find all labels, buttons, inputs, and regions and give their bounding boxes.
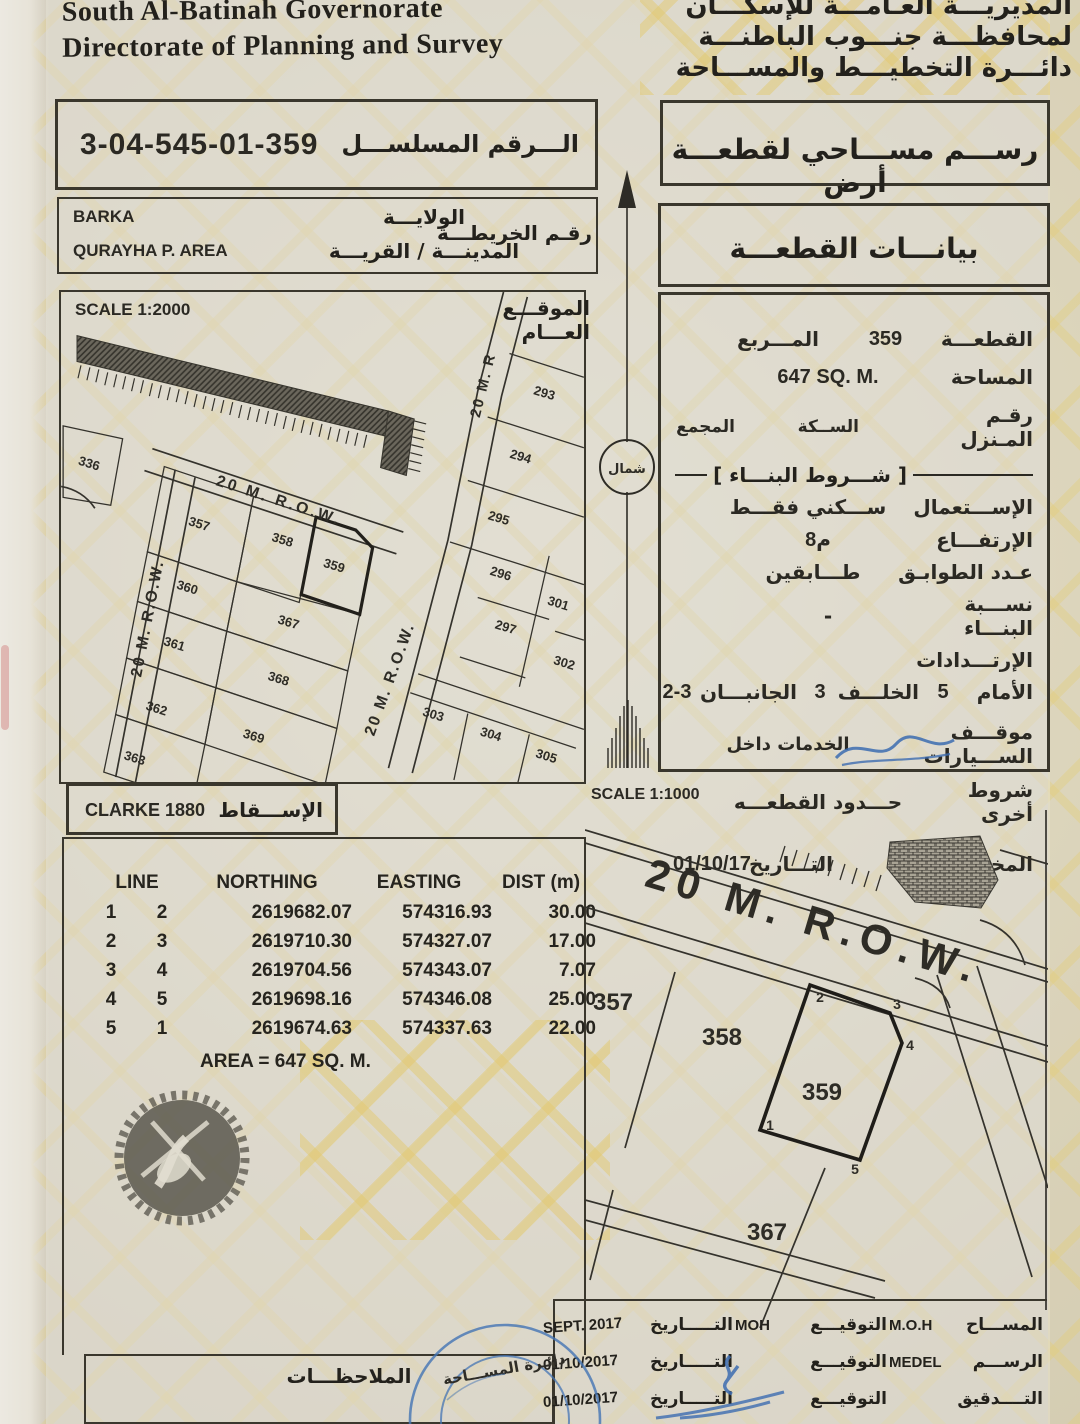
row-label-mid: 20 M. R.O.W. bbox=[362, 620, 419, 738]
ratio-row: نســـبة البنـــاء - bbox=[675, 592, 1033, 640]
block-label: المـــربع bbox=[718, 327, 838, 351]
projection-label: الإســـقاط bbox=[218, 798, 323, 822]
projection-name: CLARKE 1880 bbox=[85, 800, 205, 821]
detail-plot-labels: 357 358 359 367 bbox=[593, 989, 842, 1246]
plot-label: 305 bbox=[534, 746, 559, 767]
date-label: التـــــاريخ bbox=[633, 1315, 733, 1335]
serial-number-box: 3-04-545-01-359 الـــرقم المسلســـل bbox=[55, 99, 598, 190]
cell: 2 bbox=[136, 898, 188, 927]
subject-plot-359-detail-outline bbox=[760, 985, 902, 1160]
setbacks-label: الإرتـــدادات bbox=[675, 648, 1033, 672]
plot-label: 294 bbox=[508, 446, 534, 467]
serial-number-label: الـــرقم المسلســـل bbox=[341, 130, 579, 158]
cell: 2619704.56 bbox=[194, 956, 352, 985]
directorate-name-en: Directorate of Planning and Survey bbox=[62, 25, 582, 66]
surveyor-name: M.O.H bbox=[889, 1317, 953, 1334]
cell: 5 bbox=[136, 985, 188, 1014]
surveyor-row: المســـاح M.O.H التوقيـــع MOH التـــــا… bbox=[557, 1315, 1043, 1335]
col-line: LINE bbox=[92, 868, 182, 898]
coordinates-table: LINE NORTHING EASTING DIST (m) 122619682… bbox=[92, 868, 596, 1073]
cell: 574343.07 bbox=[358, 956, 492, 985]
house-number-label: رقـم المـنزل bbox=[915, 403, 1033, 451]
row-label-upper-right: 20 M. R bbox=[468, 351, 499, 419]
plot-label: 302 bbox=[552, 652, 577, 673]
cell: 5 bbox=[92, 1014, 130, 1043]
survey-dept-stamp: دائـرة المســـاحة bbox=[405, 1300, 615, 1424]
surveyor-label: المســـاح bbox=[955, 1315, 1043, 1335]
sides-label: الجانبـــان bbox=[705, 680, 797, 704]
vertex-label: 4 bbox=[906, 1037, 914, 1053]
area-label: المساحة bbox=[933, 365, 1033, 389]
scanned-survey-document: South Al-Batinah Governorate Directorate… bbox=[0, 0, 1080, 1424]
col-northing: NORTHING bbox=[188, 868, 346, 898]
plot-label: 301 bbox=[546, 593, 571, 614]
height-label: الإرتفـــاع bbox=[893, 528, 1033, 552]
height-value: 8 bbox=[805, 529, 816, 551]
cell: 25.00 bbox=[498, 985, 596, 1014]
detail-map-scale-label: SCALE 1:1000 bbox=[591, 786, 700, 804]
plot-label: 360 bbox=[175, 577, 200, 598]
street-label: الســكة bbox=[777, 417, 859, 437]
serial-number-value: 3-04-545-01-359 bbox=[80, 128, 319, 162]
brick-hatch-area bbox=[887, 836, 998, 908]
doc-title-box: رســـم مســـاحي لقطعـــة أرض bbox=[660, 100, 1050, 186]
cell: 574346.08 bbox=[358, 985, 492, 1014]
cell: 3 bbox=[92, 956, 130, 985]
cell: 1 bbox=[136, 1014, 188, 1043]
vertex-label: 2 bbox=[816, 989, 824, 1005]
ratio-value: - bbox=[763, 604, 893, 628]
building-conditions-title: [ شـــروط البنـــاء ] bbox=[713, 463, 907, 487]
cell: 2619674.63 bbox=[194, 1014, 352, 1043]
tick-marks bbox=[780, 846, 881, 891]
surveyor-signature: MOH bbox=[735, 1317, 789, 1334]
plot-label: 359 bbox=[802, 1079, 842, 1106]
plot-label: 369 bbox=[241, 726, 266, 747]
cell: 574316.93 bbox=[358, 898, 492, 927]
parcel-data-title: بيانـــات القطعـــة bbox=[661, 206, 1047, 265]
plot-label: 295 bbox=[486, 508, 511, 529]
table-row: 122619682.07574316.9330.00 bbox=[92, 898, 596, 927]
checker-signature-mark bbox=[650, 1388, 790, 1424]
use-label: الإســـتعمال bbox=[893, 495, 1033, 519]
floors-value: طـــابقين bbox=[733, 560, 893, 584]
area-value: 647 SQ. M. bbox=[723, 366, 933, 389]
plot-label: 358 bbox=[270, 529, 295, 550]
plot-label: 361 bbox=[162, 633, 187, 654]
cell: 22.00 bbox=[498, 1014, 596, 1043]
construction-band bbox=[77, 336, 426, 476]
site-plan-label: الموقـــع العـــام bbox=[440, 296, 590, 344]
plot-number-row: القطعـــة 359 المـــربع bbox=[675, 327, 1033, 351]
signature-label: التوقيـــع bbox=[791, 1389, 887, 1409]
table-row: 452619698.16574346.0825.00 bbox=[92, 985, 596, 1014]
planner-signature bbox=[830, 730, 960, 772]
cell: 2619682.07 bbox=[194, 898, 352, 927]
cell: 7.07 bbox=[498, 956, 596, 985]
plot-label: 357 bbox=[187, 513, 212, 534]
plot-label: 363 bbox=[122, 748, 147, 769]
area-note: AREA = 647 SQ. M. bbox=[200, 1051, 596, 1073]
cell: 3 bbox=[136, 927, 188, 956]
north-arrow-head bbox=[618, 170, 636, 208]
back-label: الخلـــف bbox=[843, 680, 919, 704]
draftsman-label: الرســـم bbox=[955, 1352, 1043, 1372]
general-location-map-box: 20 M. R.O.W. 20 M. R.O.W. 20 M. R.O.W. 2… bbox=[59, 290, 586, 784]
photo-artifact bbox=[1, 645, 9, 730]
table-row: 232619710.30574327.0717.00 bbox=[92, 927, 596, 956]
cell: 574337.63 bbox=[358, 1014, 492, 1043]
plot-label: 303 bbox=[421, 704, 446, 725]
cell: 574327.07 bbox=[358, 927, 492, 956]
use-value: ســـكني فقـــط bbox=[723, 495, 893, 519]
cell: 2619698.16 bbox=[194, 985, 352, 1014]
plot-label: 304 bbox=[478, 724, 504, 745]
plot-label: 297 bbox=[493, 617, 518, 638]
general-location-map: 20 M. R.O.W. 20 M. R.O.W. 20 M. R.O.W. 2… bbox=[61, 292, 584, 782]
org-name-ar: المديريـــة العـامـــة للإسكـــان bbox=[640, 0, 1072, 22]
plot-label: 296 bbox=[488, 563, 513, 584]
cell: 2 bbox=[92, 927, 130, 956]
parcel-data-title-box: بيانـــات القطعـــة bbox=[658, 203, 1050, 287]
cell: 2619710.30 bbox=[194, 927, 352, 956]
signatures-box: المســـاح M.O.H التوقيـــع MOH التـــــا… bbox=[553, 1299, 1047, 1424]
org-header-english: South Al-Batinah Governorate Directorate… bbox=[62, 0, 583, 67]
north-base-hatch bbox=[608, 700, 648, 768]
org-header-arabic: المديريـــة العـامـــة للإسكـــان لمحافظ… bbox=[640, 0, 1072, 84]
town-value: QURAYHA P. AREA bbox=[73, 241, 228, 261]
signature-label: التوقيـــع bbox=[791, 1315, 887, 1335]
signature-label: التوقيـــع bbox=[791, 1352, 887, 1372]
department-name-ar: دائـــرة التخطيـــط والمســـاحة bbox=[640, 53, 1072, 84]
house-street-row: رقـم المـنزل الســكة المجمع bbox=[675, 403, 1033, 451]
plot-label: 359 bbox=[322, 555, 347, 576]
plot-label: 368 bbox=[266, 668, 291, 689]
vertex-label: 1 bbox=[766, 1117, 774, 1133]
area-row: المساحة 647 SQ. M. bbox=[675, 365, 1033, 389]
plot-label: 357 bbox=[593, 989, 633, 1016]
plot-value: 359 bbox=[838, 328, 933, 351]
cell: 4 bbox=[92, 985, 130, 1014]
height-unit: م bbox=[816, 527, 831, 551]
projection-box: CLARKE 1880 الإســـقاط bbox=[66, 783, 338, 835]
setbacks-row: الإرتـــدادات bbox=[675, 648, 1033, 672]
front-label: الأمام bbox=[967, 680, 1033, 704]
back-value: 3 bbox=[797, 681, 843, 704]
floors-row: عـدد الطوابـق طـــابقين bbox=[675, 560, 1033, 584]
table-header: LINE NORTHING EASTING DIST (m) bbox=[92, 868, 596, 898]
cell: 30.00 bbox=[498, 898, 596, 927]
height-row: الإرتفـــاع م8 bbox=[675, 527, 1033, 552]
ratio-label: نســـبة البنـــاء bbox=[893, 592, 1033, 640]
checker-label: التــــدقيق bbox=[955, 1389, 1043, 1409]
wilayat-value: BARKA bbox=[73, 207, 134, 227]
map-scale-label: SCALE 1:2000 bbox=[75, 300, 190, 320]
cell: 17.00 bbox=[498, 927, 596, 956]
cell: 1 bbox=[92, 898, 130, 927]
table-row: 512619674.63574337.6322.00 bbox=[92, 1014, 596, 1043]
plot-label: القطعـــة bbox=[933, 327, 1033, 351]
plot-boundaries-left bbox=[63, 426, 360, 782]
background-pattern-strip bbox=[1048, 0, 1080, 1424]
map-number-label: رقـم الخريطـــة bbox=[437, 221, 592, 245]
sides-value: 2-3 bbox=[649, 681, 705, 704]
table-row: 342619704.56574343.077.07 bbox=[92, 956, 596, 985]
building-conditions-divider: [ شـــروط البنـــاء ] bbox=[675, 463, 1033, 487]
row-label-top: 20 M. R.O.W. bbox=[214, 473, 344, 530]
vertex-label: 5 bbox=[851, 1161, 859, 1177]
setback-values-row: الأمام 5 الخلـــف 3 الجانبـــان 2-3 bbox=[675, 680, 1033, 704]
plot-label: 367 bbox=[747, 1219, 787, 1246]
draftsman-name: MEDEL bbox=[889, 1354, 953, 1371]
location-box: BARKA الولايـــة QURAYHA P. AREA المدينـ… bbox=[57, 197, 598, 274]
plot-label: 336 bbox=[77, 453, 102, 474]
use-row: الإســـتعمال ســـكني فقـــط bbox=[675, 495, 1033, 519]
detail-map: 20 M. R.O.W. 357 358 359 367 1 2 3 4 5 bbox=[585, 780, 1048, 1340]
draftsman-row: الرســـم MEDEL التوقيـــع التـــــاريخ 0… bbox=[557, 1352, 1043, 1372]
north-label: شمال bbox=[608, 462, 646, 477]
plot-label: 358 bbox=[702, 1024, 742, 1051]
front-value: 5 bbox=[919, 681, 967, 704]
governorate-name-ar: لمحافظـــة جنـــوب الباطنـــة bbox=[640, 22, 1072, 53]
col-easting: EASTING bbox=[352, 868, 486, 898]
plot-label: 293 bbox=[532, 383, 557, 404]
official-emblem-stamp bbox=[112, 1088, 252, 1228]
complex-label: المجمع bbox=[657, 417, 735, 437]
cell: 4 bbox=[136, 956, 188, 985]
col-dist: DIST (m) bbox=[492, 868, 590, 898]
floors-label: عـدد الطوابـق bbox=[893, 560, 1033, 584]
parcel-data-panel: القطعـــة 359 المـــربع المساحة 647 SQ. … bbox=[658, 292, 1050, 772]
doc-title: رســـم مســـاحي لقطعـــة أرض bbox=[663, 103, 1047, 199]
checker-row: التــــدقيق التوقيـــع التـــــاريخ 01/1… bbox=[557, 1389, 1043, 1409]
vertex-label: 3 bbox=[893, 996, 901, 1012]
plot-label: 367 bbox=[276, 612, 301, 633]
